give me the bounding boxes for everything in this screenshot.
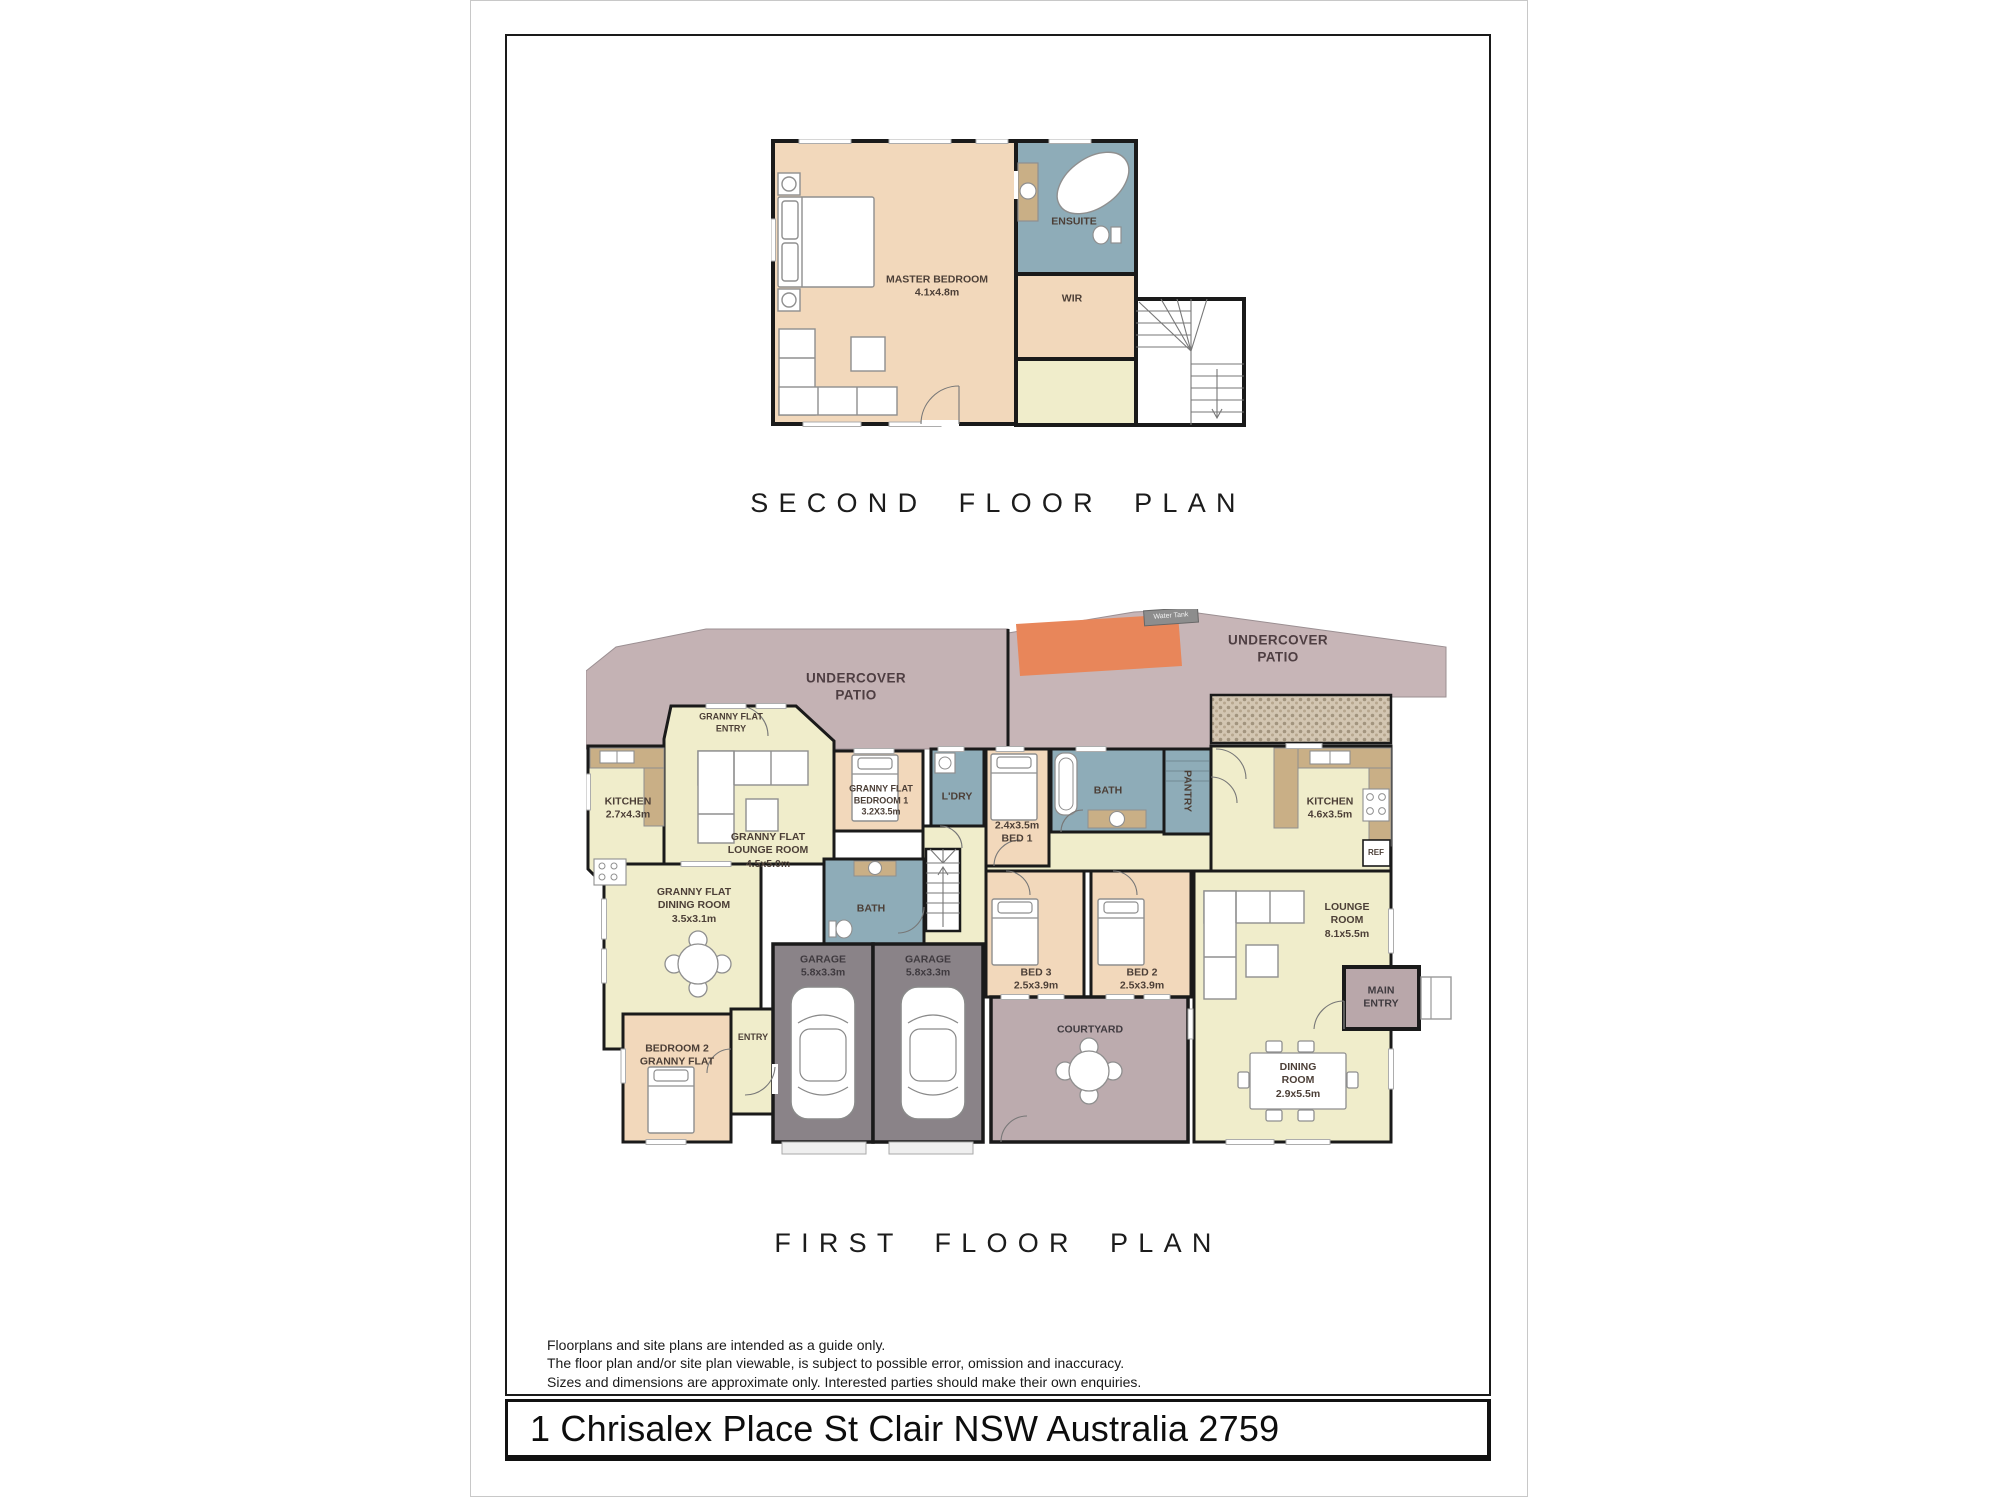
entry-step (1421, 977, 1451, 1019)
bath-tub-icon (1055, 753, 1077, 815)
address-bar: 1 Chrisalex Place St Clair NSW Australia… (505, 1399, 1491, 1461)
label-courtyard: COURTYARD (1057, 1023, 1123, 1036)
sink-icon (869, 862, 882, 875)
car-icon (791, 987, 855, 1119)
bed-icon (992, 899, 1038, 965)
washer-icon (935, 753, 955, 773)
label-gf-bedroom2: BEDROOM 2 GRANNY FLAT (640, 1043, 714, 1070)
bed-icon (1098, 899, 1144, 965)
toilet-icon (836, 920, 852, 938)
first-floor-title: FIRST FLOOR PLAN (507, 1228, 1489, 1259)
label-gf-dining: GRANNY FLAT DINING ROOM 3.5x3.1m (657, 886, 731, 926)
wir-room (1016, 274, 1136, 359)
label-wir: WIR (1062, 292, 1082, 305)
label-garage-left: GARAGE 5.8x3.3m (800, 954, 846, 981)
label-bed3: BED 3 2.5x3.9m (1014, 967, 1058, 994)
label-master-bedroom: MASTER BEDROOM 4.1x4.8m (886, 274, 988, 301)
label-ensuite: ENSUITE (1051, 215, 1097, 228)
label-gf-lounge: GRANNY FLAT LOUNGE ROOM 4.5x5.0m (728, 831, 809, 871)
label-patio-left: UNDERCOVER PATIO (806, 670, 906, 705)
label-bed1: 2.4x3.5m BED 1 (995, 820, 1039, 847)
stairs-icon (926, 849, 960, 931)
second-floor-drawing (771, 139, 1246, 429)
label-pantry: PANTRY (1180, 770, 1193, 812)
label-kitchen: KITCHEN 4.6x3.5m (1307, 796, 1354, 823)
floorplan-page: { "page": { "titles": { "second": "SECON… (0, 0, 2000, 1500)
cooktop-icon (1363, 789, 1389, 821)
stairwell (1136, 299, 1244, 425)
document-sheet: MASTER BEDROOM 4.1x4.8m ENSUITE WIR SECO… (470, 0, 1528, 1497)
label-bath: BATH (1094, 784, 1122, 797)
label-dining: DINING ROOM 2.9x5.5m (1276, 1061, 1320, 1101)
bed-icon (991, 754, 1037, 820)
first-floor-plan: UNDERCOVER PATIO UNDERCOVER PATIO Water … (586, 609, 1461, 1169)
label-gf-entry: GRANNY FLAT ENTRY (699, 711, 763, 734)
label-ref: REF (1368, 848, 1384, 858)
property-address: 1 Chrisalex Place St Clair NSW Australia… (508, 1408, 1279, 1450)
bed-icon (648, 1067, 694, 1133)
label-main-entry: MAIN ENTRY (1363, 985, 1398, 1012)
driveway-apron (889, 1142, 973, 1154)
driveway-apron (782, 1142, 866, 1154)
plan-frame: MASTER BEDROOM 4.1x4.8m ENSUITE WIR SECO… (505, 34, 1491, 1396)
label-patio-right: UNDERCOVER PATIO (1228, 632, 1328, 667)
second-floor-plan: MASTER BEDROOM 4.1x4.8m ENSUITE WIR (771, 139, 1246, 429)
label-gf-kitchen: KITCHEN 2.7x4.3m (605, 796, 652, 823)
label-bed2: BED 2 2.5x3.9m (1120, 967, 1164, 994)
cooktop-icon (594, 859, 626, 885)
label-entry: ENTRY (738, 1032, 768, 1044)
second-floor-title: SECOND FLOOR PLAN (507, 488, 1489, 519)
disclaimer-text: Floorplans and site plans are intended a… (547, 1336, 1141, 1391)
paved-path (1211, 695, 1391, 743)
label-gf-bath: BATH (857, 902, 885, 915)
label-laundry: L'DRY (942, 790, 973, 803)
label-garage-right: GARAGE 5.8x3.3m (905, 954, 951, 981)
sink-icon (1110, 812, 1125, 827)
car-icon (901, 987, 965, 1119)
label-gf-bedroom1: GRANNY FLAT BEDROOM 1 3.2X3.5m (849, 784, 913, 819)
label-lounge: LOUNGE ROOM 8.1x5.5m (1325, 901, 1370, 941)
